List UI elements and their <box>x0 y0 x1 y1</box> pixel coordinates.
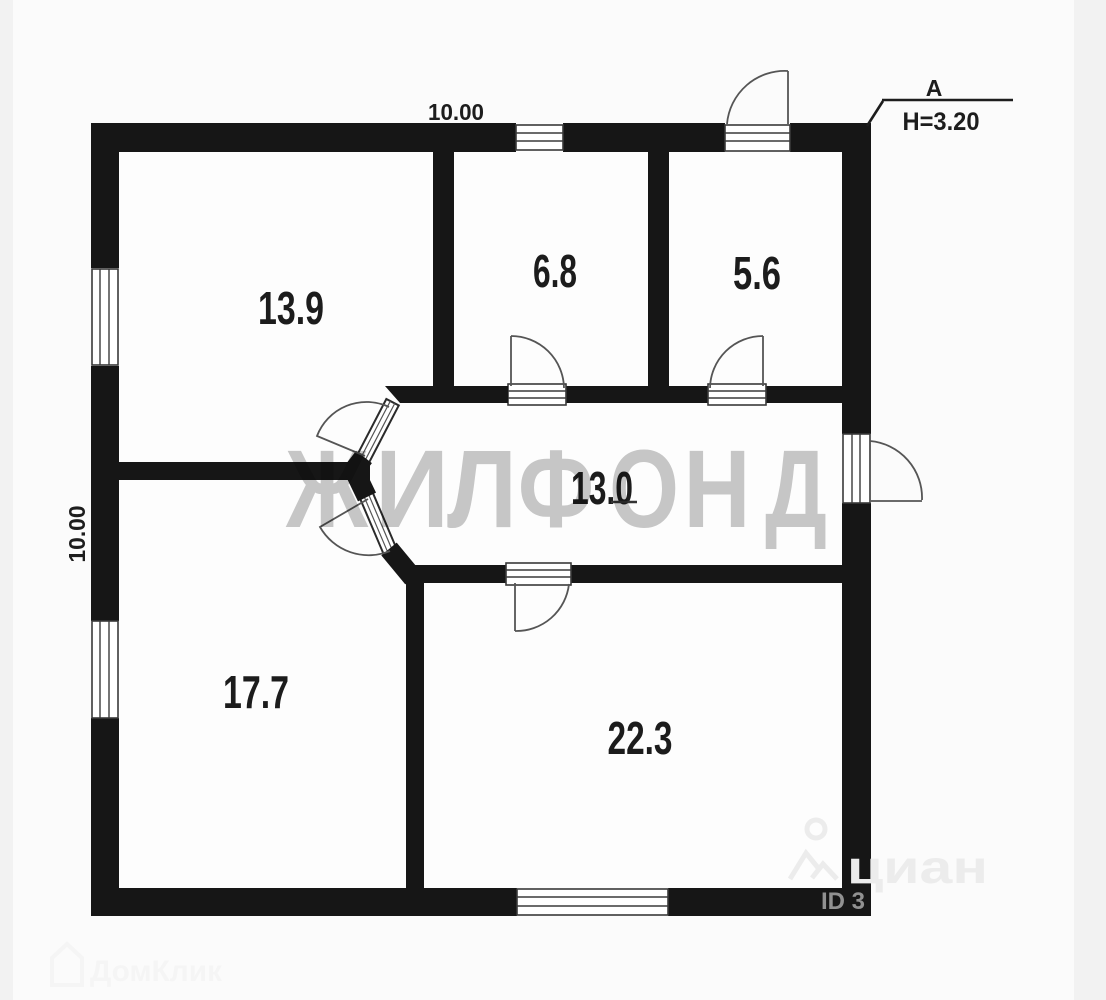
svg-text:Н: Н <box>684 428 751 551</box>
svg-text:Л: Л <box>447 428 517 551</box>
svg-text:13.9: 13.9 <box>258 282 324 334</box>
svg-text:17.7: 17.7 <box>223 666 289 718</box>
svg-text:циан: циан <box>847 841 988 893</box>
svg-text:H=3.20: H=3.20 <box>903 108 980 136</box>
svg-text:И: И <box>375 428 449 551</box>
svg-text:10.00: 10.00 <box>64 506 90 563</box>
svg-text:ДомКлик: ДомКлик <box>90 955 223 988</box>
svg-text:Д: Д <box>765 428 827 551</box>
svg-text:10.00: 10.00 <box>428 99 484 125</box>
svg-text:Ж: Ж <box>285 428 368 551</box>
svg-text:О: О <box>609 428 679 551</box>
svg-text:Ф: Ф <box>518 428 594 551</box>
svg-text:6.8: 6.8 <box>533 245 577 297</box>
svg-text:A: A <box>926 75 943 101</box>
svg-text:22.3: 22.3 <box>608 712 673 764</box>
svg-text:ID 3: ID 3 <box>821 888 865 915</box>
svg-text:5.6: 5.6 <box>733 247 781 299</box>
